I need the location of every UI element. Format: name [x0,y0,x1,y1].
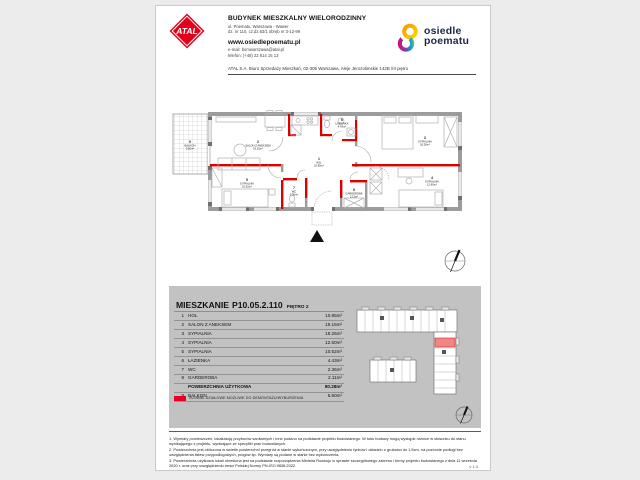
brand-line-2: poematu [424,37,469,47]
brand-wordmark: osiedle poematu [424,27,469,46]
furniture [212,111,457,209]
website-text: www.osiedlepoematu.pl [228,39,418,46]
phone-text: telefon: (+48) 22 814 15 13 [228,53,418,58]
apartment-title-label: MIESZKANIE [176,300,229,310]
plan-room-label: 8GARDEROBA2.11m² [345,188,362,199]
plan-room-label: 6ŁAZIENKA4.43m² [336,118,349,129]
rooms-table: 1HOL10.85m²2SALON Z ANEKSEM19.15m²3SYPIA… [174,311,344,402]
table-row: 2SALON Z ANEKSEM19.15m² [174,320,344,329]
building-title: BUDYNEK MIESZKALNY WIELORODZINNY [228,15,418,22]
legend-text: ŚCIANKI DZIAŁOWE MOŻLIWE DO DEMONTAŻU/WY… [189,396,303,400]
screen: ATAL BUDYNEK MIESZKALNY WIELORODZINNY ul… [0,0,640,480]
legend: ŚCIANKI DZIAŁOWE MOŻLIWE DO DEMONTAŻU/WY… [174,396,303,401]
plan-room-label: 3SYPIALNIA18.26m² [418,136,432,147]
footnotes: 1. Wymiary pomieszczeń, lokalizację przy… [169,436,481,469]
table-row: 8GARDEROBA2.11m² [174,374,344,383]
plan-room-label: 7WC2.36m² [290,186,298,197]
table-row: 4SYPIALNIA12.60m² [174,338,344,347]
apartment-unit-number: P10.05.2.110 [232,300,283,310]
highlighted-unit [435,338,455,347]
document-page: ATAL BUDYNEK MIESZKALNY WIELORODZINNY ul… [155,5,491,471]
footnote-3: 3. Powierzchnia użytkowa lokali określon… [169,458,481,468]
table-row: 5SYPIALNIA10.52m² [174,347,344,356]
footnote-2: 2. Powierzchnia jest obliczona w świetle… [169,447,481,457]
compass-small-icon [453,403,475,427]
address-line-2: dz. nr 110, cz.dz.63/1 obręb nr 3-12-99 [228,29,418,34]
red-partition-walls [210,114,460,209]
plan-room-label: 1HOL10.85m² [314,157,324,168]
footer-divider [169,431,481,432]
apartment-info-panel: MIESZKANIEP10.05.2.110PIĘTRO 2 1HOL10.85… [169,286,481,428]
apartment-floor-label: PIĘTRO 2 [287,305,309,310]
table-row: POWIERZCHNIA UŻYTKOWA80.28m² [174,383,344,392]
door-arcs [268,131,389,209]
rooms-table-body: 1HOL10.85m²2SALON Z ANEKSEM19.15m²3SYPIA… [174,312,344,402]
version-label: v 1.0 [469,464,478,469]
osiedle-poematu-logo-icon [395,23,421,55]
table-row: 6ŁAZIENKA4.43m² [174,356,344,365]
table-row: 7WC2.36m² [174,365,344,374]
compass-icon [442,246,468,276]
plan-room-label: 4SYPIALNIA12.60m² [425,176,439,187]
header-divider [228,74,476,75]
plan-room-label: 5SYPIALNIA10.52m² [240,178,254,189]
table-row: 1HOL10.85m² [174,312,344,321]
legend-red-swatch-icon [174,396,186,401]
svg-text:ATAL: ATAL [175,26,197,36]
building-key-plan [352,298,480,416]
plan-room-label: 2SALON Z ANEKSEM19.15m² [245,140,271,151]
entrance-arrow-icon [310,230,324,242]
entrance-marker [310,207,335,242]
header-text-block: BUDYNEK MIESZKALNY WIELORODZINNY ul. Poe… [228,15,418,58]
table-row: 3SYPIALNIA18.26m² [174,329,344,338]
footnote-1: 1. Wymiary pomieszczeń, lokalizację przy… [169,436,481,446]
atal-logo-icon: ATAL [169,13,205,49]
sales-office-line: ATAL S.A. Biuro Sprzedaży Mieszkań, 02-3… [228,66,478,71]
floor-plan: 1HOL10.85m²2SALON Z ANEKSEM19.15m²3SYPIA… [170,94,480,249]
